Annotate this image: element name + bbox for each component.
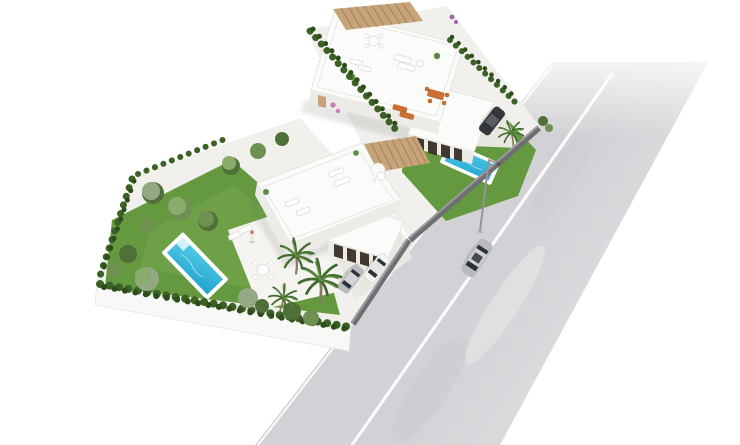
shrub (107, 263, 121, 277)
olive-tree (238, 288, 258, 308)
lamp-head (497, 162, 501, 166)
olive-tree (142, 182, 164, 204)
villa-a-entry-door (318, 95, 326, 108)
purple-flower-plant (454, 20, 458, 24)
architectural-render-image (0, 0, 740, 445)
shrub-by-wall (545, 124, 553, 132)
shrub (119, 245, 137, 263)
olive-tree (168, 197, 192, 221)
shrub (255, 299, 269, 313)
shrub (303, 310, 319, 326)
olive-tree (198, 211, 218, 231)
shrub-by-wall (538, 116, 548, 126)
purple-flower-plant (450, 15, 455, 20)
pink-flower-bush (336, 109, 340, 113)
patio-dining-table (258, 265, 269, 276)
shrub (139, 218, 155, 234)
road-top-fade (500, 36, 740, 136)
potted-plant (353, 150, 359, 156)
tree (275, 132, 289, 146)
roof-dining-table (369, 36, 379, 46)
render-canvas (0, 0, 740, 445)
roof-coffee-table (416, 60, 423, 66)
pink-flower-bush (330, 102, 335, 107)
potted-plant (263, 189, 269, 195)
olive-tree-large (135, 267, 159, 291)
roof-dining-table (377, 172, 385, 180)
potted-plant (434, 53, 440, 59)
tree (250, 143, 266, 159)
tree (222, 156, 236, 170)
